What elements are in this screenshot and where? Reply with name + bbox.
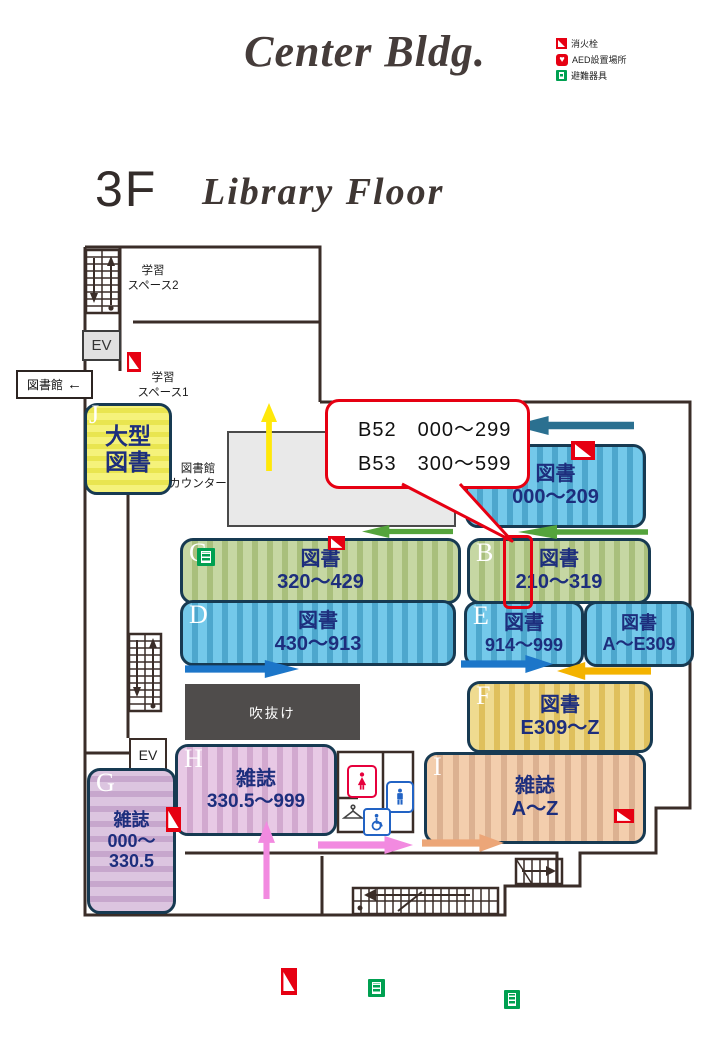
mens-restroom-icon — [386, 781, 414, 813]
fire-hydrant-icon — [281, 968, 297, 995]
womens-restroom-icon — [347, 765, 377, 798]
section-letter: E — [473, 602, 489, 631]
elevator-top: EV — [82, 330, 121, 361]
coat-hanger-icon — [342, 804, 364, 821]
library-direction-sign: 図書館 ← — [16, 370, 93, 399]
elevator-label: EV — [91, 337, 111, 354]
fire-hydrant-icon — [166, 807, 181, 832]
section-type: 図書 — [621, 613, 657, 634]
section-range: A～E309 — [602, 634, 675, 655]
floor-map-page: Center Bldg. 消火栓 AED設置場所 避難器具 3F Library… — [0, 0, 720, 1040]
section-range: 330.5～999 — [207, 791, 305, 813]
fire-hydrant-icon — [614, 809, 634, 823]
shelf-highlight-box — [503, 535, 533, 609]
section-D: D 図書 430～913 — [180, 600, 456, 666]
section-type: 図書 — [536, 463, 576, 486]
section-G: G 雑誌 000～ 330.5 — [87, 768, 176, 914]
section-letter: J — [89, 401, 99, 430]
section-letter: I — [433, 753, 442, 782]
callout-line-2: B53 300～599 — [358, 447, 527, 476]
section-type: 図書 — [298, 610, 338, 633]
stairs-mid-left — [129, 634, 161, 711]
left-arrow-glyph: ← — [67, 377, 82, 392]
callout-line-1: B52 000～299 — [358, 413, 527, 442]
section-type: 図書 — [540, 694, 580, 717]
section-A-to-E309: 図書 A～E309 — [584, 601, 694, 667]
fire-hydrant-icon — [328, 536, 345, 550]
elevator-label: EV — [139, 747, 158, 763]
section-type: 雑誌 — [236, 768, 276, 791]
atrium-label: 吹抜け — [249, 702, 296, 722]
accessible-restroom-icon — [363, 808, 391, 836]
evacuation-equipment-icon — [197, 548, 215, 566]
counter-label: 図書館 カウンター — [160, 462, 236, 492]
section-type: 図書 — [504, 612, 544, 635]
section-range: 914～999 — [485, 635, 563, 656]
section-C: C 図書 320～429 — [180, 538, 461, 604]
stairs-bottom-right — [516, 859, 562, 884]
section-E: E 図書 914～999 — [464, 601, 584, 667]
section-type: 雑誌 — [114, 810, 150, 831]
section-range: 320～429 — [277, 571, 364, 594]
section-type: 図書 — [301, 548, 341, 571]
section-B: B 図書 210～319 — [467, 538, 651, 604]
section-type: 雑誌 — [515, 775, 555, 798]
stairs-bottom-center — [353, 888, 498, 914]
stairs-top-left — [86, 250, 119, 313]
section-J-large-books: J 大型 図書 — [84, 403, 172, 495]
section-range: 000～ 330.5 — [107, 831, 155, 872]
evacuation-equipment-icon — [504, 990, 520, 1009]
section-letter: D — [189, 601, 208, 630]
section-H: H 雑誌 330.5～999 — [175, 744, 337, 836]
evacuation-equipment-icon — [368, 979, 385, 997]
elevator-bottom: EV — [129, 738, 167, 772]
study-space-1-label: 学習 スペース1 — [128, 371, 198, 401]
section-range: E309～Z — [521, 717, 600, 740]
section-range: A～Z — [512, 798, 559, 821]
shelf-callout: B52 000～299 B53 300～599 — [325, 399, 530, 489]
section-range: 000～209 — [512, 486, 599, 509]
section-letter: H — [184, 745, 203, 774]
section-type: 大型 図書 — [105, 423, 151, 476]
section-letter: G — [96, 769, 115, 798]
section-letter: F — [476, 682, 490, 711]
section-letter: B — [476, 539, 493, 568]
section-type: 図書 — [539, 548, 579, 571]
section-F: F 図書 E309～Z — [467, 681, 653, 753]
atrium-area: 吹抜け — [185, 684, 360, 740]
fire-hydrant-icon — [571, 441, 595, 460]
library-sign-label: 図書館 — [27, 376, 63, 393]
section-range: 430～913 — [275, 633, 362, 656]
fire-hydrant-icon — [127, 352, 141, 372]
study-space-2-label: 学習 スペース2 — [118, 264, 188, 294]
section-I: I 雑誌 A～Z — [424, 752, 646, 844]
